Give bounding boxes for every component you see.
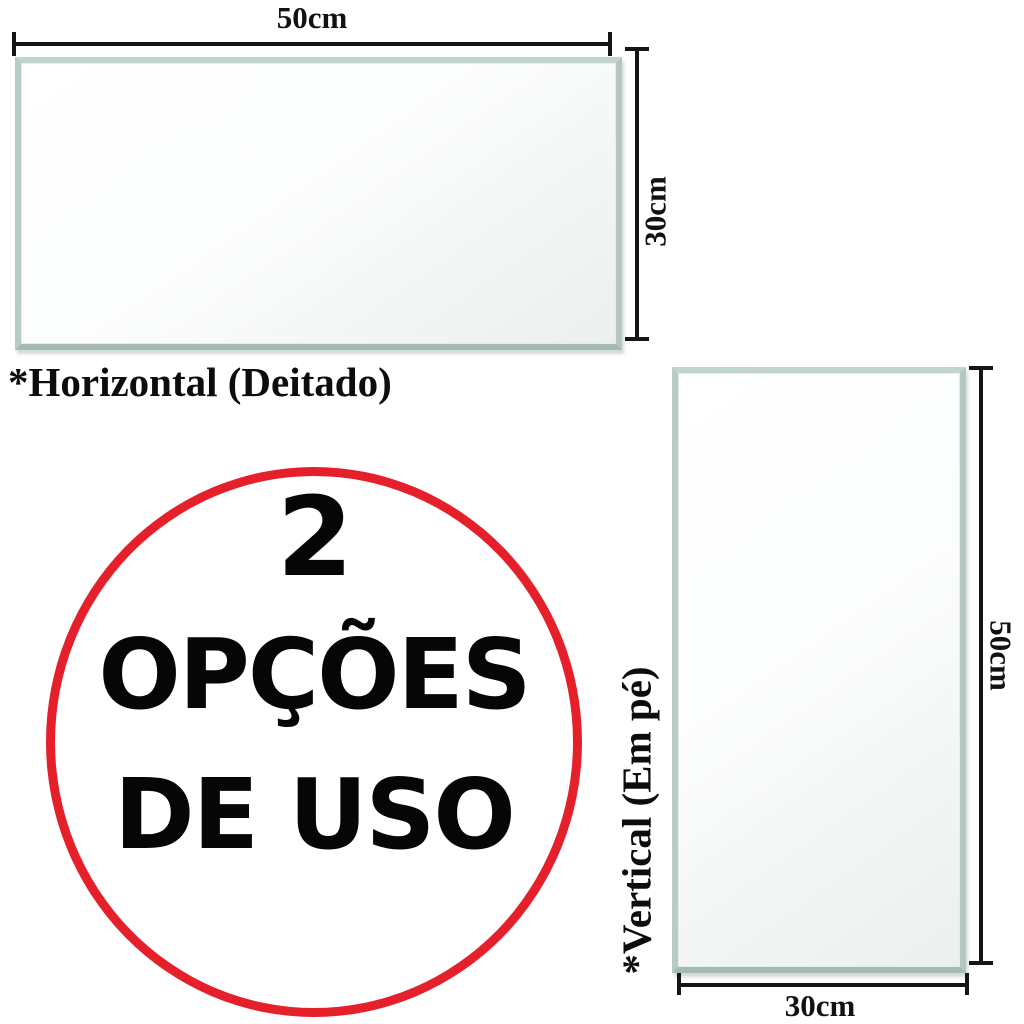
vertical-mirror-width-dimension-line (677, 983, 969, 987)
horizontal-option-caption: *Horizontal (Deitado) (8, 362, 392, 403)
horizontal-mirror-width-dimension-line (12, 42, 612, 46)
dimension-tick (625, 47, 649, 51)
horizontal-mirror-height-label: 30cm (640, 152, 671, 272)
usage-options-word2: DE USO (55, 764, 573, 866)
usage-options-badge: 2 OPÇÕES DE USO (46, 467, 582, 1017)
usage-options-word1: OPÇÕES (55, 624, 573, 726)
dimension-tick (965, 973, 969, 995)
horizontal-mirror (15, 57, 622, 350)
dimension-tick (12, 32, 16, 56)
horizontal-mirror-width-label: 50cm (12, 2, 612, 33)
product-diagram: 50cm 30cm *Horizontal (Deitado) 2 OPÇÕES… (0, 0, 1024, 1024)
dimension-tick (625, 337, 649, 341)
vertical-mirror (672, 367, 966, 973)
dimension-tick (969, 961, 993, 965)
vertical-mirror-width-label: 30cm (700, 990, 940, 1021)
dimension-tick (608, 32, 612, 56)
vertical-mirror-height-dimension-line (979, 368, 983, 965)
vertical-mirror-height-label: 50cm (986, 596, 1017, 716)
usage-options-count: 2 (55, 480, 573, 596)
dimension-tick (677, 973, 681, 995)
dimension-tick (969, 366, 993, 370)
vertical-option-caption: *Vertical (Em pé) (617, 621, 658, 1021)
